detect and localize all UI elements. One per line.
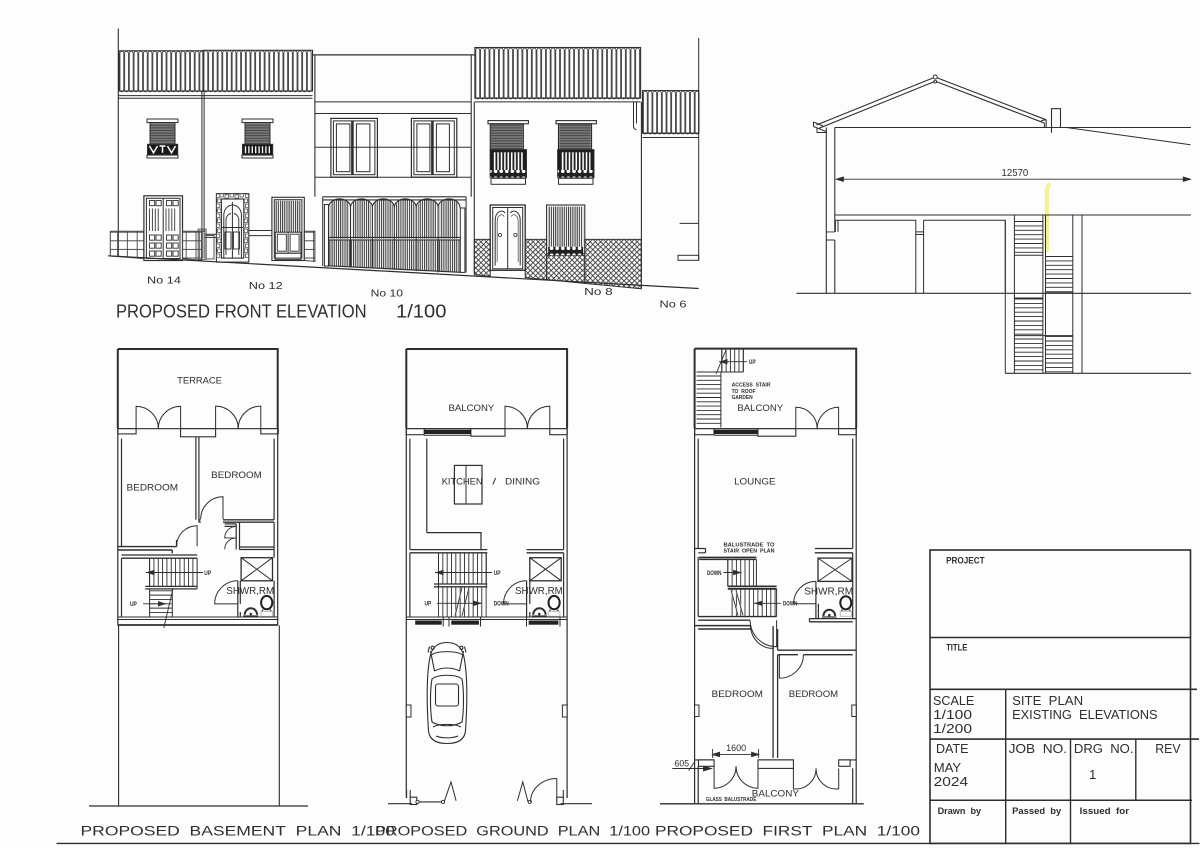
svg-text:/: / [492, 476, 496, 487]
svg-text:1: 1 [1089, 767, 1096, 782]
svg-text:EXISTING ELEVATIONS: EXISTING ELEVATIONS [1012, 707, 1158, 722]
svg-text:UP: UP [425, 601, 432, 608]
svg-text:BEDROOM: BEDROOM [789, 688, 838, 699]
svg-text:STAIR OPEN PLAN: STAIR OPEN PLAN [724, 549, 775, 555]
svg-text:DRG NO.: DRG NO. [1074, 741, 1134, 756]
svg-text:UP: UP [130, 601, 137, 608]
svg-text:PROPOSED BASEMENT PLAN 1/10: PROPOSED BASEMENT PLAN 1/100 [81, 824, 396, 840]
svg-text:GARDEN: GARDEN [732, 395, 753, 401]
svg-text:No 6: No 6 [660, 298, 687, 310]
svg-text:DOWN: DOWN [707, 570, 722, 577]
svg-text:1/200: 1/200 [933, 721, 972, 736]
svg-text:No 8: No 8 [584, 286, 613, 298]
svg-text:12570: 12570 [1002, 168, 1029, 179]
svg-text:PROPOSED GROUND PLAN 1/100: PROPOSED GROUND PLAN 1/100 [375, 824, 650, 840]
svg-text:2024: 2024 [934, 774, 968, 789]
svg-text:1/100: 1/100 [396, 300, 446, 321]
svg-text:BALCONY: BALCONY [449, 402, 496, 413]
svg-text:GLASS BALUSTRADE: GLASS BALUSTRADE [706, 797, 757, 803]
svg-text:No 10: No 10 [371, 288, 404, 300]
svg-text:1/100: 1/100 [933, 707, 972, 722]
svg-text:TO ROOF: TO ROOF [732, 389, 756, 395]
svg-text:REV: REV [1155, 741, 1180, 756]
svg-text:TERRACE: TERRACE [177, 375, 222, 386]
svg-text:UP: UP [204, 570, 211, 577]
svg-text:Issued for: Issued for [1080, 805, 1130, 816]
svg-text:TITLE: TITLE [946, 643, 967, 653]
svg-text:SITE PLAN: SITE PLAN [1012, 693, 1083, 708]
svg-text:BALUSTRADE TO: BALUSTRADE TO [724, 542, 775, 548]
svg-text:PROPOSED FIRST PLAN 1/100: PROPOSED FIRST PLAN 1/100 [655, 824, 920, 840]
svg-text:KITCHEN: KITCHEN [442, 476, 483, 487]
svg-text:BEDROOM: BEDROOM [211, 469, 262, 480]
svg-text:BEDROOM: BEDROOM [712, 688, 764, 699]
svg-text:BEDROOM: BEDROOM [127, 482, 179, 493]
svg-text:No 14: No 14 [147, 275, 181, 287]
svg-text:UP: UP [749, 359, 756, 366]
svg-text:605: 605 [675, 759, 690, 770]
svg-text:BALCONY: BALCONY [737, 402, 784, 413]
svg-text:1600: 1600 [726, 743, 746, 754]
svg-text:JOB NO.: JOB NO. [1009, 741, 1067, 756]
svg-text:DATE: DATE [936, 741, 969, 756]
svg-text:No 12: No 12 [249, 280, 283, 292]
svg-text:UP: UP [494, 570, 501, 577]
svg-text:LOUNGE: LOUNGE [734, 476, 775, 487]
svg-text:DINING: DINING [505, 476, 540, 487]
svg-text:BALCONY: BALCONY [752, 788, 800, 799]
svg-text:ACCESS STAIR: ACCESS STAIR [732, 383, 772, 389]
svg-text:Passed by: Passed by [1012, 805, 1062, 816]
svg-text:PROJECT: PROJECT [946, 556, 985, 566]
svg-text:Drawn by: Drawn by [938, 805, 982, 816]
svg-text:PROPOSED FRONT ELEVATION: PROPOSED FRONT ELEVATION [116, 300, 367, 321]
svg-text:SCALE: SCALE [933, 693, 974, 708]
svg-text:MAY: MAY [934, 760, 962, 775]
